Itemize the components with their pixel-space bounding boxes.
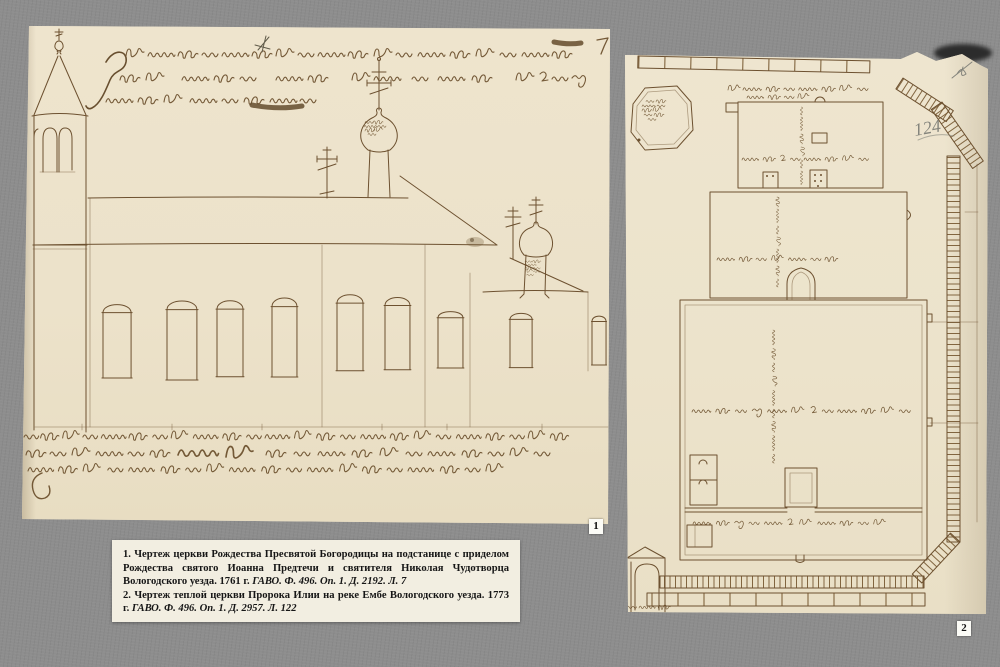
floor-plan-rooms — [680, 97, 932, 563]
room-labels — [692, 107, 910, 529]
chapel-inscription — [525, 260, 541, 276]
main-roof-slope — [400, 176, 497, 245]
caption-box: 1. Чертеж церкви Рождества Пресвятой Бог… — [112, 540, 520, 622]
windows-row — [102, 295, 607, 380]
page-background: 124 1 2 1. Чертеж церкви Рождества Пресв… — [0, 0, 1000, 667]
figure-1-number-badge: 1 — [589, 519, 603, 534]
roof-cross-left — [317, 147, 337, 198]
top-inscription — [86, 36, 608, 109]
plan-drawing-svg: 124 — [625, 52, 988, 614]
caption-entry-2-reference: ГАВО. Ф. 496. Оп. 1. Д. 2957. Л. 122 — [132, 603, 297, 614]
cemetery-gate — [627, 547, 665, 614]
octagon-note — [631, 86, 693, 150]
caption-entry-1: 1. Чертеж церкви Рождества Пресвятой Бог… — [123, 548, 509, 589]
plan-title-inscription — [728, 85, 868, 99]
side-chapel-dome — [505, 197, 553, 298]
fence-border — [638, 56, 984, 606]
figure-2-number-badge: 2 — [957, 621, 971, 636]
elevation-drawing-svg — [22, 26, 610, 524]
caption-entry-2-number: 2. — [123, 590, 131, 601]
figure-1-elevation-drawing — [22, 26, 610, 524]
figure-2-plan-drawing: 124 — [625, 52, 988, 614]
bottom-inscription — [24, 431, 569, 499]
caption-entry-1-reference: ГАВО. Ф. 496. Оп. 1. Д. 2192. Л. 7 — [252, 576, 406, 587]
bell-tower — [32, 29, 88, 432]
church-facade — [33, 176, 608, 430]
caption-entry-1-number: 1. — [123, 549, 131, 560]
dome-inscription — [364, 120, 386, 135]
caption-entry-2: 2. Чертеж теплой церкви Пророка Илии на … — [123, 589, 509, 616]
